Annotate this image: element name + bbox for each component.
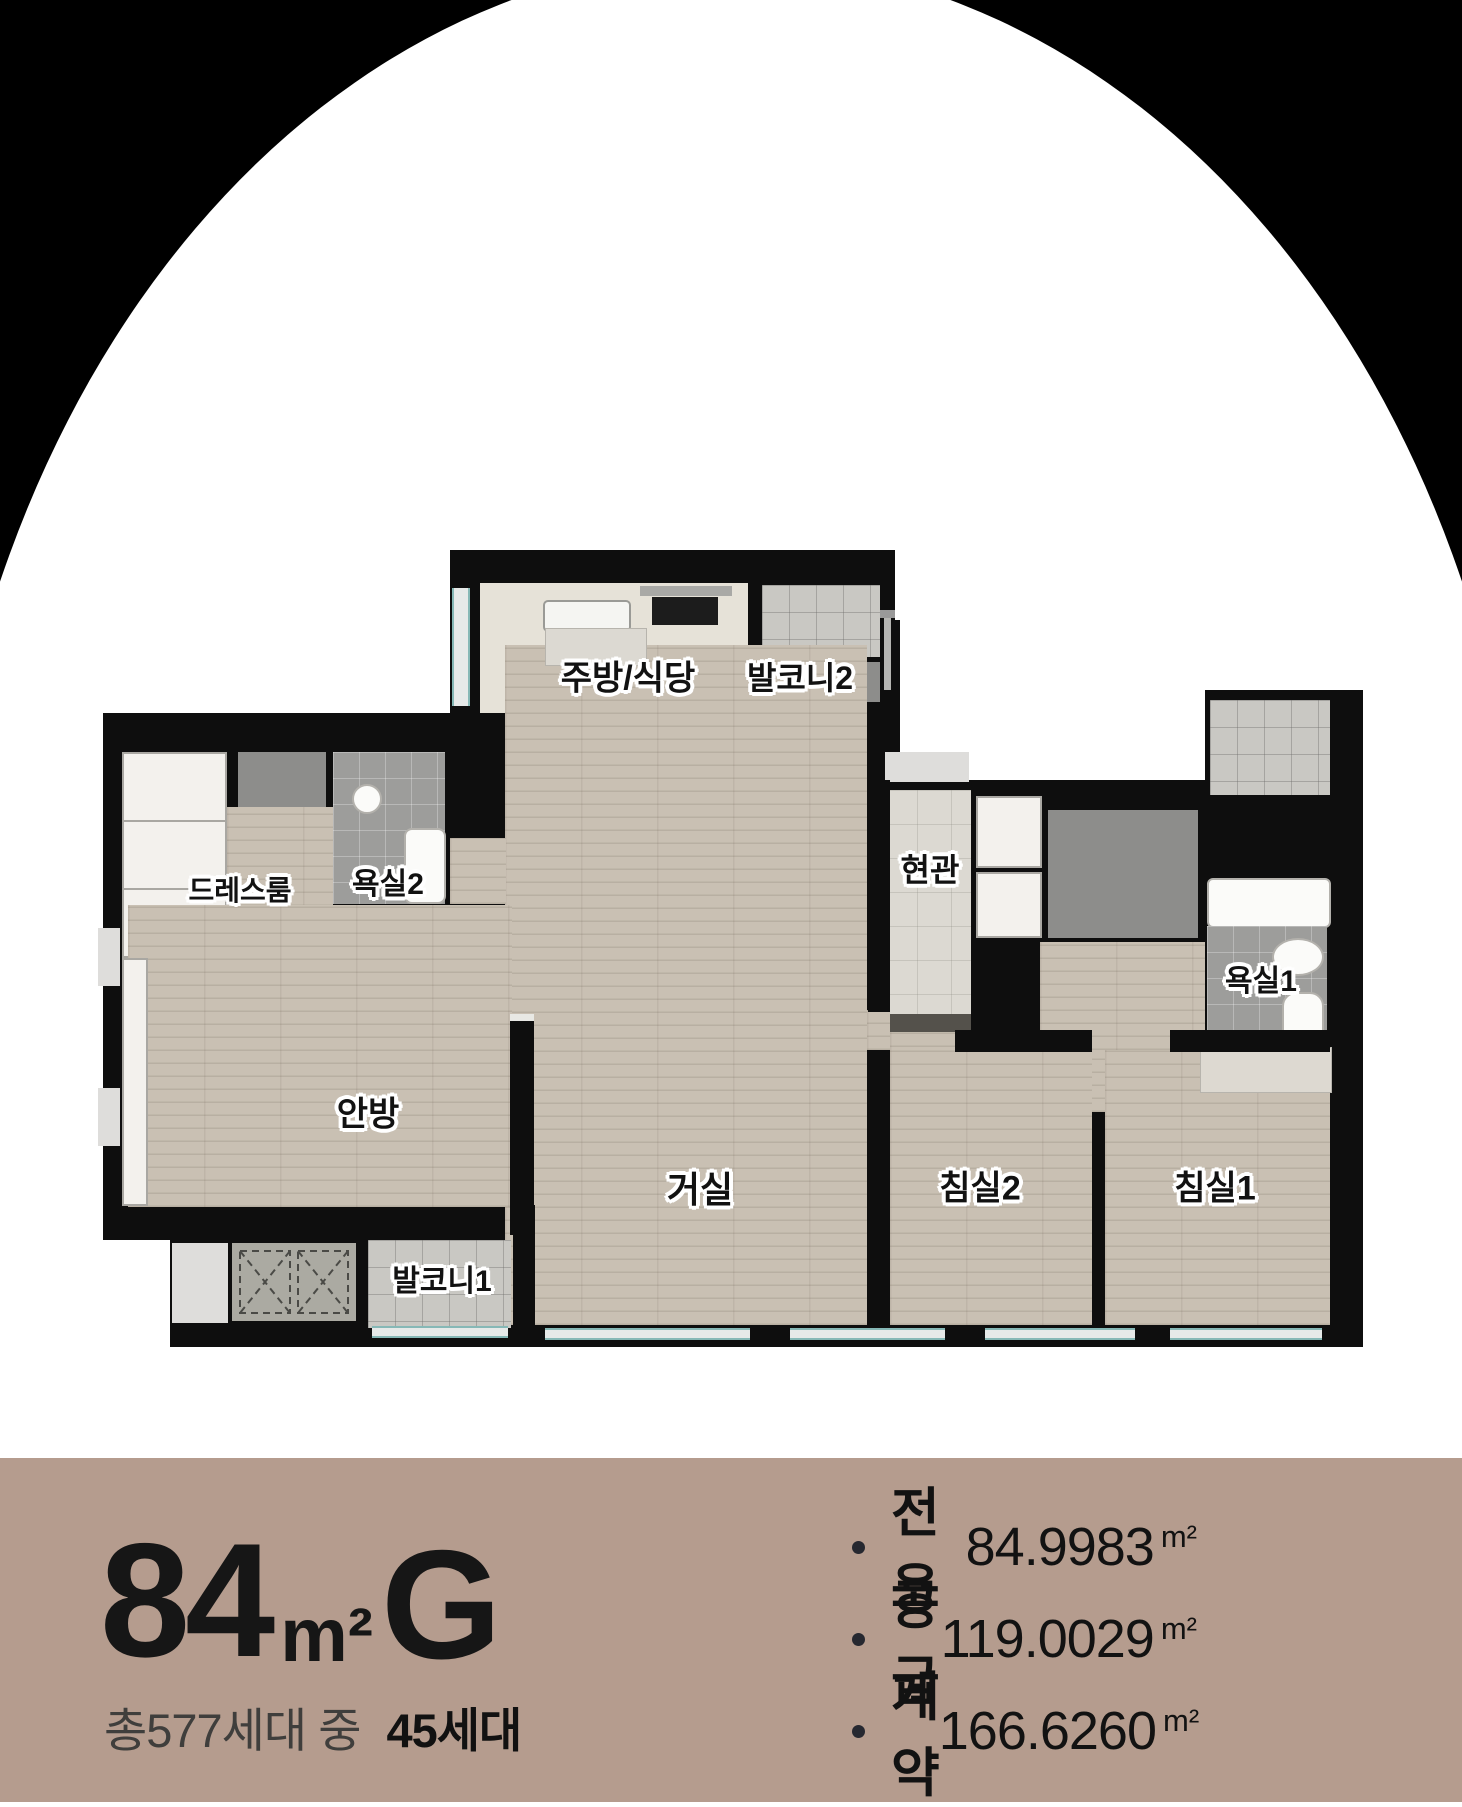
room-label-bathroom1: 욕실1 (1225, 956, 1297, 1000)
vent-pipe (884, 614, 891, 690)
room-label-balcony2: 발코니2 (747, 653, 853, 699)
room-label-bedroom2: 침실2 (939, 1161, 1020, 1210)
bedroom2-window (985, 1328, 1135, 1340)
hall-opening (867, 1010, 890, 1050)
entrance-floor (883, 790, 971, 1014)
room-label-balcony1: 발코니1 (392, 1256, 492, 1300)
room-label-master-bedroom: 안방 (337, 1087, 400, 1136)
area-value: 166.6260 (939, 1700, 1156, 1762)
unit-type-title: 84 m² G (100, 1520, 502, 1682)
wall-bedroom2-west (868, 1050, 890, 1347)
entry-shoe-closet (976, 872, 1042, 938)
living-window (790, 1328, 945, 1340)
wall-bedroom1-north (1170, 1030, 1330, 1052)
bullet-icon (852, 1633, 865, 1646)
area-unit: m² (1163, 1703, 1199, 1739)
elevator-x-icon (232, 1243, 356, 1321)
wall-entry-west (868, 780, 890, 1012)
living-window (545, 1328, 750, 1340)
area-value: 84.9983 (966, 1516, 1154, 1578)
bath1-upper-tile (1210, 700, 1330, 795)
storage-room (1048, 810, 1198, 938)
households-line: 총577세대 중 45세대 (104, 1692, 521, 1761)
master-bedroom-floor (128, 905, 512, 1207)
stair-landing (172, 1243, 228, 1323)
bullet-icon (852, 1541, 865, 1554)
room-label-kitchen: 주방/식당 (561, 651, 696, 700)
room-label-living-room: 거실 (667, 1161, 733, 1213)
living-dining-floor (505, 645, 867, 1325)
bathroom1-tub (1207, 878, 1331, 928)
wall-bedroom2-north (955, 1030, 1092, 1052)
area-unit: m² (1161, 1519, 1197, 1555)
households-count: 45세대 (387, 1704, 522, 1757)
wall-master-east (510, 1020, 534, 1235)
entry-shoe-closet (976, 796, 1042, 868)
utility-closet (238, 752, 326, 807)
bathroom2-shower (352, 784, 382, 814)
area-list: 전용 84.9983 m² 공급 119.0029 m² 계약 166.6260… (852, 1512, 1197, 1766)
master-door-opening (450, 838, 506, 904)
wall-living-balcony1 (513, 1205, 535, 1347)
area-label: 계약 (891, 1655, 939, 1807)
bedroom1-window (1170, 1328, 1322, 1340)
kitchen-hood (640, 586, 732, 596)
households-total: 총577세대 중 (104, 1704, 360, 1757)
bullet-icon (852, 1725, 865, 1738)
wall-cap (510, 1014, 534, 1021)
unit-type-letter: G (381, 1527, 502, 1682)
balcony1-window (372, 1326, 508, 1338)
area-row-contract: 계약 166.6260 m² (852, 1696, 1197, 1766)
kitchen-stove (652, 597, 718, 625)
wardrobe-divider (124, 820, 225, 822)
area-value: 119.0029 (941, 1608, 1154, 1670)
unit-size-number: 84 (100, 1520, 270, 1682)
room-label-bathroom2: 욕실2 (352, 859, 424, 903)
unit-size-unit: m² (280, 1598, 373, 1674)
left-wall-window (98, 1088, 120, 1146)
room-label-entrance: 현관 (901, 845, 960, 891)
kitchen-window (452, 588, 470, 706)
entry-step (885, 752, 969, 782)
room-label-dressroom: 드레스룸 (188, 869, 291, 909)
floor-plan: 주방/식당 발코니2 드레스룸 욕실2 현관 욕실1 안방 거실 침실2 침실1… (0, 0, 1462, 1458)
vent-pipe-cap (880, 610, 895, 618)
room-label-bedroom1: 침실1 (1174, 1161, 1255, 1210)
area-unit: m² (1161, 1611, 1197, 1647)
master-closet-strip (122, 958, 148, 1206)
left-wall-window (98, 928, 120, 986)
bedroom1-shelf (1200, 1047, 1332, 1093)
wall-between-bedrooms (1092, 1112, 1105, 1347)
elevator-shaft (232, 1243, 356, 1321)
